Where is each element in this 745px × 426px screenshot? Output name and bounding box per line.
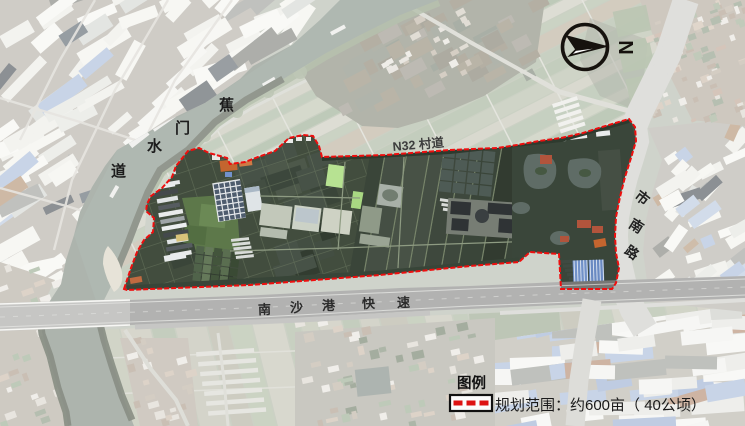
svg-text:沙: 沙 xyxy=(290,300,304,315)
svg-text:南: 南 xyxy=(258,302,272,317)
svg-text:N: N xyxy=(614,40,636,54)
svg-text:港: 港 xyxy=(322,298,337,313)
svg-text:快: 快 xyxy=(362,296,377,311)
svg-text:规划范围：约600亩（ 40公顷）: 规划范围：约600亩（ 40公顷） xyxy=(495,396,706,414)
svg-text:图例: 图例 xyxy=(457,374,486,392)
svg-text:道: 道 xyxy=(111,162,126,180)
svg-text:水: 水 xyxy=(147,137,163,155)
svg-text:速: 速 xyxy=(397,295,411,310)
svg-text:门: 门 xyxy=(175,119,190,137)
svg-text:蕉: 蕉 xyxy=(219,96,234,114)
